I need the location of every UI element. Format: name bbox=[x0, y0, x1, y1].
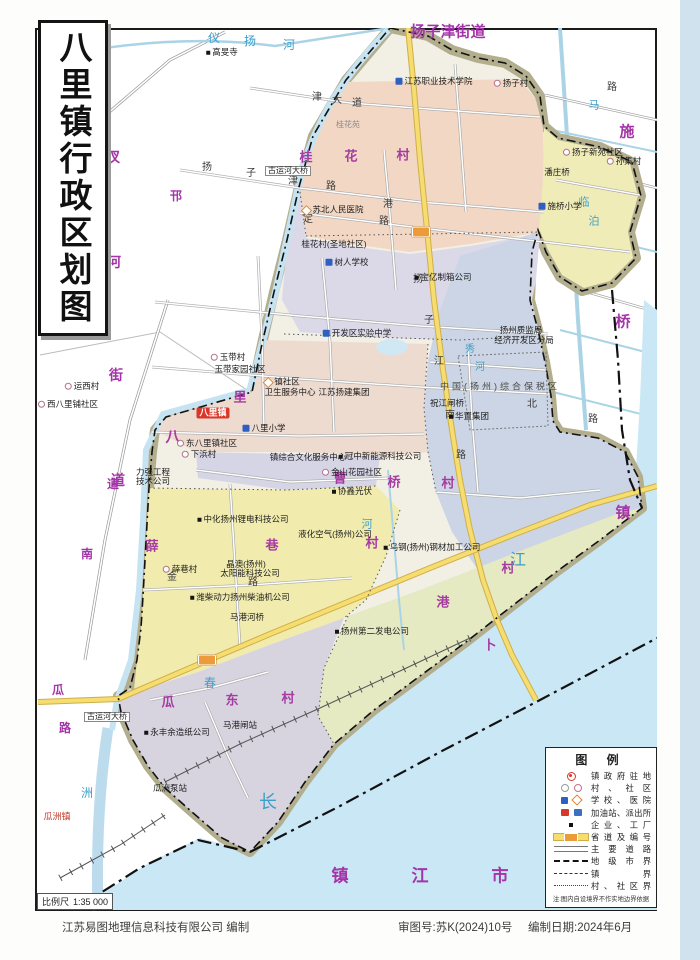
city-boundary-sample bbox=[554, 860, 588, 862]
village-icon bbox=[561, 784, 569, 792]
legend-item-factory: 企业、工厂 bbox=[551, 819, 651, 831]
publisher-credit: 江苏易图地理信息科技有限公司 编制 bbox=[62, 919, 249, 935]
map-title-box: 八里镇行政区划图 bbox=[38, 20, 108, 336]
town-government-icon bbox=[567, 772, 576, 781]
approval-number: 审图号:苏K(2024)10号 bbox=[398, 919, 512, 935]
provincial-road-sample bbox=[553, 833, 589, 841]
legend-item-label: 镇界 bbox=[591, 868, 651, 880]
legend-item-label: 村、社区 bbox=[591, 782, 651, 794]
legend: 图 例 镇政府驻地村、社区学校、医院加油站、派出所企业、工厂省道及编号主要道路地… bbox=[545, 747, 657, 908]
compile-date: 编制日期:2024年6月 bbox=[528, 919, 632, 935]
legend-item-label: 村、社区界 bbox=[591, 880, 651, 892]
scale-label: 比例尺 bbox=[42, 895, 69, 908]
legend-rows: 镇政府驻地村、社区学校、医院加油站、派出所企业、工厂省道及编号主要道路地级市界镇… bbox=[551, 770, 651, 892]
legend-item-label: 地级市界 bbox=[591, 855, 651, 867]
legend-item-govt: 镇政府驻地 bbox=[551, 770, 651, 782]
credits-bar: 江苏易图地理信息科技有限公司 编制 审图号:苏K(2024)10号 编制日期:2… bbox=[0, 916, 700, 940]
main-road-sample bbox=[554, 846, 588, 852]
gas-station-icon bbox=[561, 809, 569, 816]
legend-item-label: 学校、医院 bbox=[591, 794, 651, 806]
road-shield-icon bbox=[564, 833, 578, 842]
town-boundary-sample bbox=[554, 873, 588, 874]
school-icon bbox=[561, 797, 568, 804]
legend-title: 图 例 bbox=[551, 751, 651, 768]
legend-item-gas-police: 加油站、派出所 bbox=[551, 807, 651, 819]
legend-item-road: 主要道路 bbox=[551, 843, 651, 855]
legend-item-school-hosp: 学校、医院 bbox=[551, 794, 651, 806]
page-edge-strip bbox=[680, 0, 700, 960]
community-icon bbox=[574, 784, 582, 792]
legend-item-label: 省道及编号 bbox=[591, 831, 651, 843]
legend-note: 注:图内自设境界不作实地边界依据 bbox=[551, 894, 651, 903]
legend-item-sroad: 省道及编号 bbox=[551, 831, 651, 843]
legend-item-label: 镇政府驻地 bbox=[591, 770, 651, 782]
legend-item-villine: 村、社区界 bbox=[551, 880, 651, 892]
police-station-icon bbox=[574, 809, 582, 816]
scale-value: 1:35 000 bbox=[73, 897, 108, 907]
factory-icon bbox=[569, 823, 573, 827]
village-boundary-sample bbox=[554, 885, 588, 886]
legend-item-label: 加油站、派出所 bbox=[591, 807, 651, 819]
page-title: 八里镇行政区划图 bbox=[49, 30, 97, 326]
legend-item-village: 村、社区 bbox=[551, 782, 651, 794]
legend-item-label: 企业、工厂 bbox=[591, 819, 651, 831]
legend-item-townline: 镇界 bbox=[551, 868, 651, 880]
legend-item-cityline: 地级市界 bbox=[551, 855, 651, 867]
scale-box: 比例尺 1:35 000 bbox=[37, 893, 113, 910]
hospital-icon bbox=[571, 795, 582, 806]
legend-item-label: 主要道路 bbox=[591, 843, 651, 855]
